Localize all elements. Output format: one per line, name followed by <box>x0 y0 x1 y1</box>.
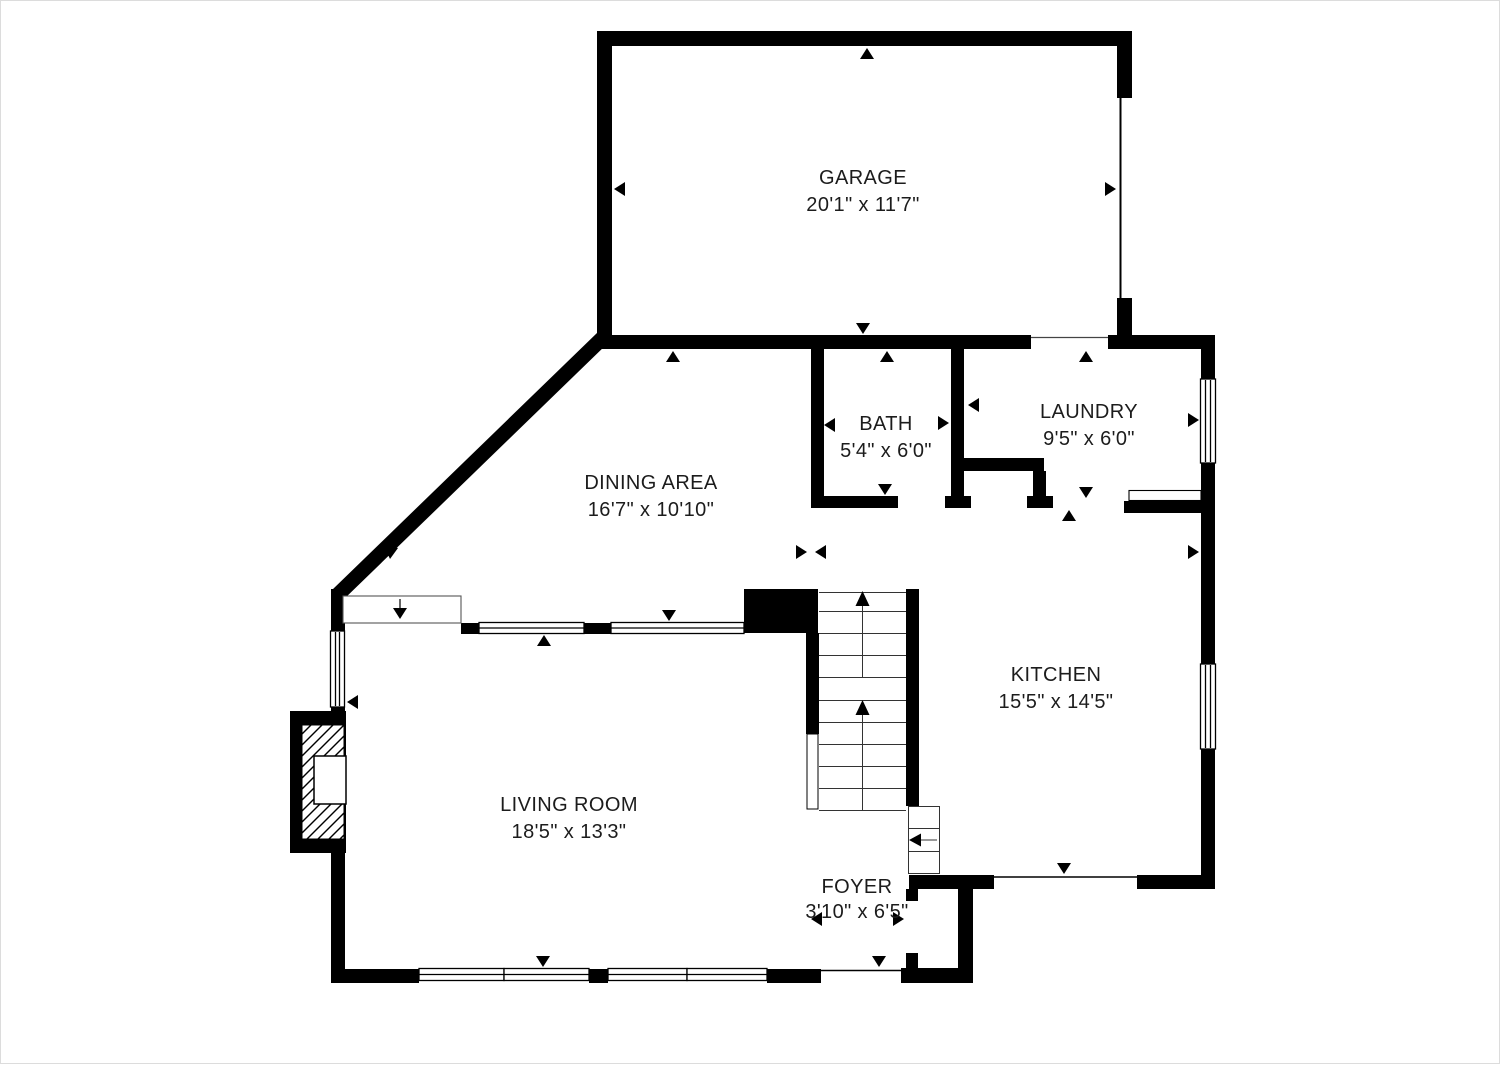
living-room-dims: 18'5" x 13'3" <box>512 821 627 843</box>
wall-living-left-lower <box>331 853 345 969</box>
laundry-door-leaf <box>1129 491 1201 501</box>
wall-foyer-stub-lower <box>906 953 918 968</box>
wall-living-top-seg2 <box>584 623 611 634</box>
marker-laundry-left-icon <box>968 398 979 412</box>
marker-laundry-exit-icon <box>1079 487 1093 498</box>
laundry-dims: 9'5" x 6'0" <box>1043 428 1135 450</box>
marker-garage-left-icon <box>614 182 625 196</box>
wall-garage-right-upper <box>1117 31 1132 98</box>
floor-plan-canvas: GARAGE 20'1" x 11'7" DINING AREA 16'7" x… <box>1 1 1500 1065</box>
marker-living-window-left-icon <box>347 695 358 709</box>
marker-garage-door-icon <box>1105 182 1116 196</box>
wall-garage-top <box>597 31 1132 46</box>
foyer-dims: 3'10" x 6'5" <box>805 901 908 923</box>
stairs-up-arrow-2-icon <box>856 700 870 715</box>
marker-entry-opening-icon <box>872 956 886 967</box>
marker-laundry-door-bottom-icon <box>1062 510 1076 521</box>
wall-living-top-seg1 <box>461 623 479 634</box>
wall-garage-left <box>597 31 612 347</box>
wall-living-bottom-left <box>331 969 419 983</box>
wall-living-bottom-right <box>767 969 821 983</box>
kitchen-dims: 15'5" x 14'5" <box>999 691 1114 713</box>
stairs-rail <box>807 734 818 809</box>
openings <box>343 98 1201 971</box>
living-room-label: LIVING ROOM <box>500 794 638 816</box>
marker-living-bottom-icon <box>536 956 550 967</box>
wall-foyer-top <box>909 875 994 889</box>
wall-stairs-block <box>744 589 818 633</box>
wall-stairs-left <box>806 633 819 734</box>
marker-hall-left-icon <box>815 545 826 559</box>
marker-bath-door-icon <box>878 484 892 495</box>
wall-foyer-right <box>958 889 973 968</box>
window-kitchen <box>1201 664 1216 749</box>
marker-bath-right-icon <box>938 416 949 430</box>
marker-bath-top-icon <box>880 351 894 362</box>
marker-garage-bottom-icon <box>856 323 870 334</box>
wall-living-bottom-mid <box>589 969 608 983</box>
marker-dining-top-icon <box>666 351 680 362</box>
laundry-label: LAUNDRY <box>1040 401 1138 423</box>
wall-right-outer-1 <box>1201 335 1215 379</box>
wall-laundry-nook-top <box>964 458 1044 471</box>
bath-label: BATH <box>859 413 912 435</box>
bath-dims: 5'4" x 6'0" <box>840 440 932 462</box>
marker-kitchen-patio-icon <box>1057 863 1071 874</box>
fireplace <box>302 725 346 839</box>
fireplace-firebox <box>314 756 346 804</box>
wall-foyer-stub-upper <box>906 889 918 901</box>
wall-laundry-nook-side <box>1033 471 1046 496</box>
wall-right-outer-3 <box>1201 749 1215 875</box>
wall-laundry-nook-foot <box>1027 496 1053 508</box>
staircase <box>807 593 940 874</box>
kitchen-label: KITCHEN <box>1011 664 1102 686</box>
marker-laundry-window-icon <box>1188 413 1199 427</box>
marker-bath-left-icon <box>824 418 835 432</box>
floor-plan-page: GARAGE 20'1" x 11'7" DINING AREA 16'7" x… <box>0 0 1500 1064</box>
dining-dims: 16'7" x 10'10" <box>588 499 714 521</box>
wall-garage-bottom <box>597 335 1031 349</box>
marker-living-window-icon <box>662 610 676 621</box>
markers <box>347 48 1199 967</box>
garage-dims: 20'1" x 11'7" <box>806 194 919 216</box>
marker-garage-top-icon <box>860 48 874 59</box>
wall-dining-diagonal <box>332 332 608 601</box>
marker-hall-right-icon <box>796 545 807 559</box>
stairs-up-arrow-icon <box>856 591 870 606</box>
wall-right-outer-2 <box>1201 463 1215 664</box>
marker-laundry-door-top-icon <box>1079 351 1093 362</box>
garage-label: GARAGE <box>819 167 907 189</box>
wall-bath-right <box>951 349 964 496</box>
wall-kitchen-bottom <box>1137 875 1215 889</box>
wall-laundry-top <box>1108 335 1215 349</box>
wall-foyer-bottom <box>901 968 973 983</box>
window-laundry <box>1201 379 1216 463</box>
foyer-label: FOYER <box>822 876 893 898</box>
marker-living-top-wall-icon <box>537 635 551 646</box>
wall-bath-left <box>811 349 824 508</box>
dining-label: DINING AREA <box>584 472 718 494</box>
window-living-left <box>331 631 345 707</box>
room-labels: GARAGE 20'1" x 11'7" DINING AREA 16'7" x… <box>500 167 1138 923</box>
wall-bath-right-foot <box>945 496 971 508</box>
marker-kitchen-wall-icon <box>1188 545 1199 559</box>
wall-bath-bottom <box>811 496 898 508</box>
wall-stairs-right <box>906 589 919 806</box>
